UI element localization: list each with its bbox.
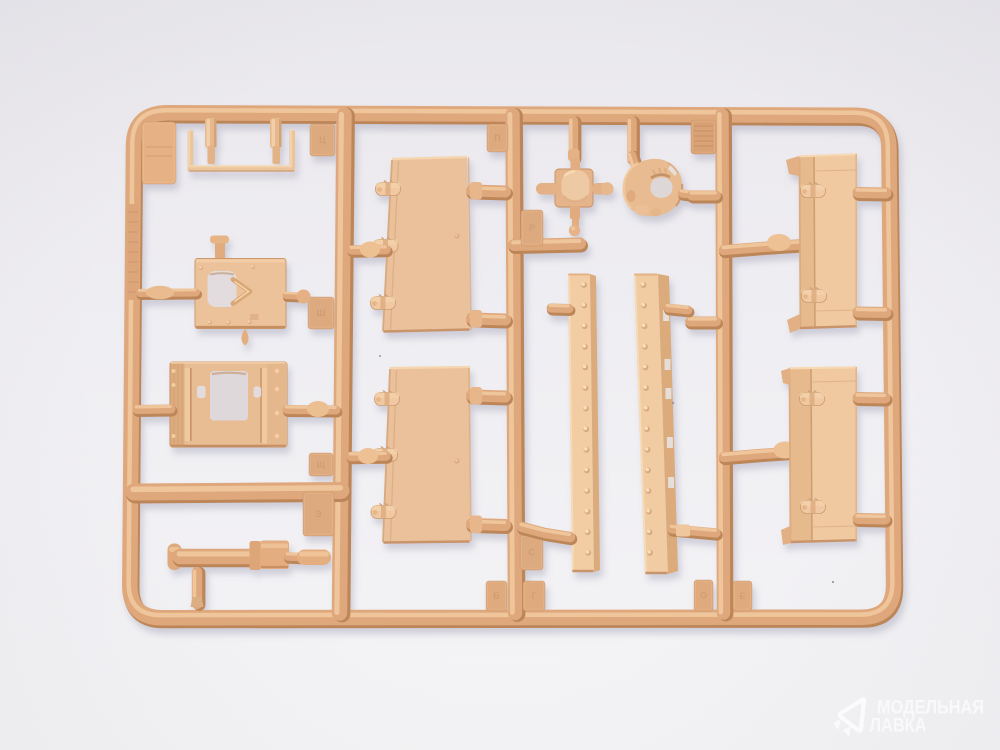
- svg-text:Щ: Щ: [317, 460, 326, 469]
- svg-text:ЛАВКА: ЛАВКА: [870, 715, 927, 737]
- svg-text:П: П: [494, 133, 500, 143]
- svg-text:Б: Б: [493, 591, 500, 601]
- svg-text:Э: Э: [315, 509, 322, 519]
- svg-text:С: С: [528, 548, 535, 558]
- svg-text:Г: Г: [531, 591, 536, 601]
- svg-text:О: О: [700, 591, 707, 601]
- svg-text:Ш: Ш: [316, 308, 325, 318]
- svg-text:Р: Р: [529, 223, 535, 233]
- svg-text:Е: Е: [739, 591, 745, 601]
- svg-text:Ц: Ц: [319, 135, 326, 145]
